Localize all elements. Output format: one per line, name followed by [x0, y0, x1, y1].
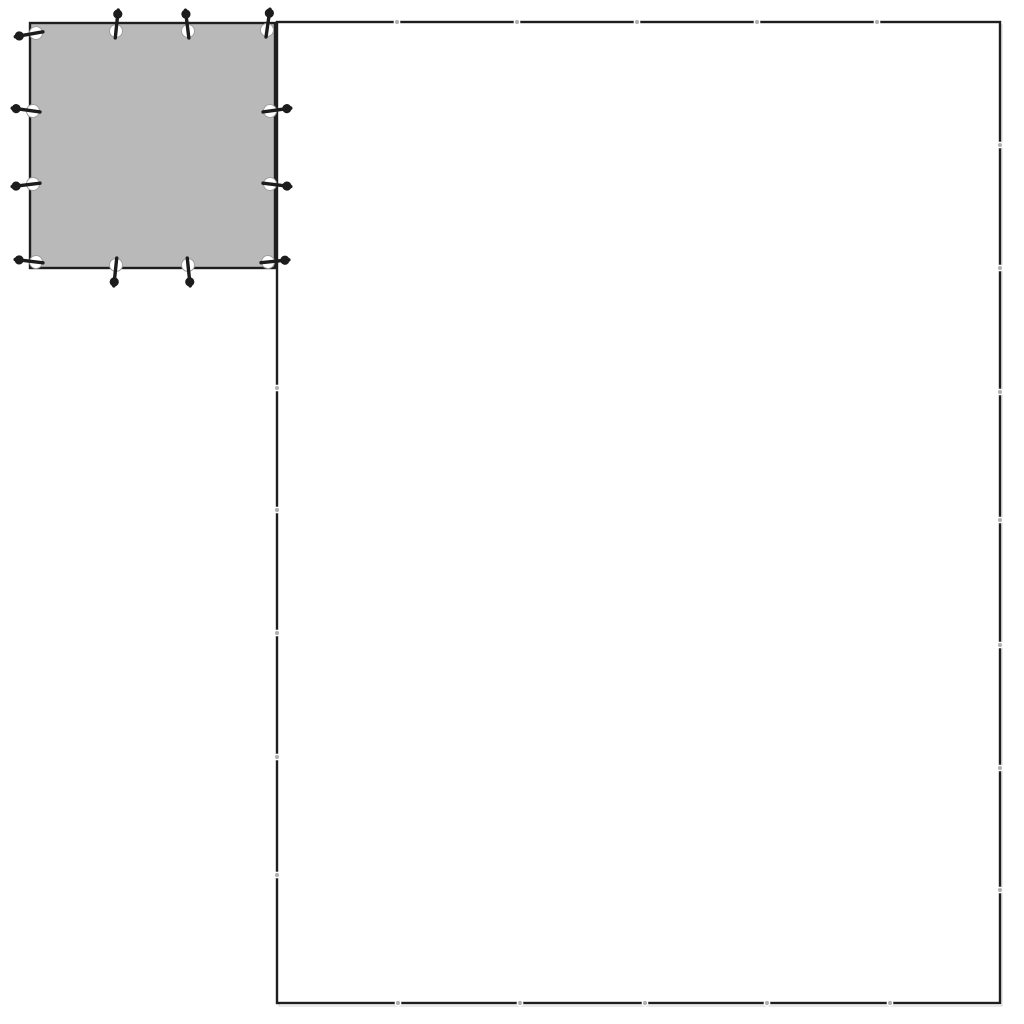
grommet-mark-icon [765, 1001, 769, 1005]
grommet-mark-icon [275, 386, 279, 390]
grommet-mark-icon [998, 266, 1002, 270]
grommet-mark-icon [275, 508, 279, 512]
peg-head-icon [185, 277, 195, 287]
grommet-mark-icon [396, 1001, 400, 1005]
grommet-mark-icon [998, 888, 1002, 892]
small-tarp [30, 23, 275, 268]
grommet-mark-icon [275, 873, 279, 877]
grommet-mark-icon [635, 20, 639, 24]
grommet-mark-icon [998, 518, 1002, 522]
grommet-mark-icon [998, 643, 1002, 647]
tarp-illustration-canvas [0, 0, 1024, 1024]
grommet-mark-icon [395, 20, 399, 24]
peg-head-icon [181, 9, 191, 19]
peg-head-icon [11, 103, 21, 113]
tarp-size-illustration [0, 0, 1024, 1024]
small-tarp-rect [30, 23, 275, 268]
grommet-mark-icon [998, 390, 1002, 394]
grommet-mark-icon [518, 1001, 522, 1005]
grommet-mark-icon [515, 20, 519, 24]
peg-head-icon [14, 31, 25, 42]
grommet-mark-icon [755, 20, 759, 24]
grommet-mark-icon [643, 1001, 647, 1005]
grommet-mark-icon [275, 755, 279, 759]
peg-head-icon [14, 255, 24, 265]
peg-head-icon [113, 9, 123, 19]
large-tarp-rect [277, 22, 1000, 1003]
grommet-mark-icon [998, 143, 1002, 147]
peg-head-icon [109, 277, 119, 287]
peg-head-icon [11, 181, 21, 191]
large-tarp-outline [277, 22, 1002, 1006]
grommet-mark-icon [275, 631, 279, 635]
grommet-mark-icon [888, 1001, 892, 1005]
grommet-mark-icon [998, 766, 1002, 770]
peg-head-icon [264, 8, 274, 18]
grommet-mark-icon [875, 20, 879, 24]
